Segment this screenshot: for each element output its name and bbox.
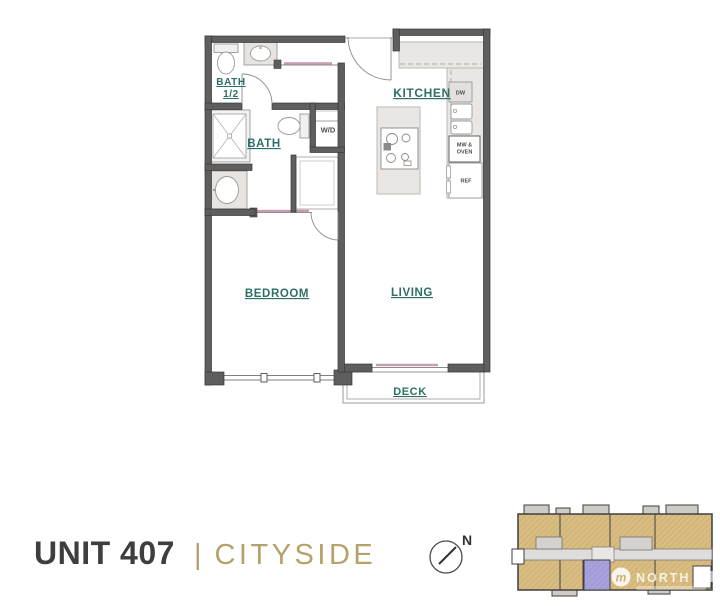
washer-dryer-unit: [314, 108, 341, 121]
title-bar: UNIT 407 | CITYSIDE: [34, 535, 376, 572]
kitchen-sink: [451, 104, 472, 134]
watermark-logo-letter: m: [616, 571, 627, 585]
microwave-oven-label-line2: OVEN: [457, 150, 473, 156]
room-label-washer-dryer: W/D: [321, 126, 336, 135]
site-plan-notch-left: [512, 549, 524, 564]
cooktop: [381, 128, 418, 169]
floor-plan-graphic: DW MW & OVEN REF: [0, 0, 720, 606]
entry-door-arc: [348, 37, 391, 80]
kitchen-island: [377, 107, 420, 194]
bedroom-window: [224, 374, 334, 383]
room-label-deck: DECK: [393, 386, 427, 398]
bedroom-door-arc: [311, 212, 338, 240]
site-plan-unit-highlight: [584, 560, 610, 590]
dishwasher-label: DW: [456, 91, 466, 97]
site-plan-core-right: [620, 537, 652, 550]
site-plan: m NORTH: [512, 505, 716, 596]
room-label-half-bath-line2: 1/2: [223, 89, 239, 100]
floor-plan: DW MW & OVEN REF: [205, 29, 490, 403]
watermark-text: NORTH: [636, 571, 690, 585]
microwave-oven-label-line1: MW &: [457, 143, 472, 149]
room-label-bedroom: BEDROOM: [245, 288, 309, 300]
bedroom-closet: [296, 157, 338, 209]
floor-plan-page: DW MW & OVEN REF: [0, 0, 720, 606]
room-label-living: LIVING: [391, 287, 433, 299]
bath-sink: [209, 171, 247, 209]
dishwasher-box: DW: [449, 82, 472, 102]
room-label-kitchen: KITCHEN: [393, 86, 451, 100]
half-bath-sink: [244, 42, 277, 65]
title-name: CITYSIDE: [214, 539, 376, 572]
compass-north-label: N: [462, 532, 472, 548]
half-bath-door-arc: [242, 74, 272, 104]
shower: [209, 110, 250, 162]
site-plan-corridor: [518, 549, 712, 560]
title-divider: |: [194, 539, 202, 572]
site-plan-core-left: [536, 537, 562, 549]
hall-sliding-door: [274, 60, 338, 69]
watermark-subtext: [636, 586, 706, 590]
bath-toilet: [278, 114, 309, 138]
watermark-text-cutoff: [706, 571, 716, 582]
half-bath-toilet: [214, 44, 238, 74]
refrigerator-box: REF: [447, 163, 483, 198]
microwave-oven-box: MW & OVEN: [449, 136, 480, 162]
title-unit: UNIT 407: [34, 535, 175, 572]
room-label-bath: BATH: [247, 138, 281, 150]
deck-sliding-door: [372, 364, 448, 368]
room-label-half-bath-line1: BATH: [216, 77, 245, 88]
refrigerator-label: REF: [461, 179, 473, 185]
north-compass: N: [430, 532, 472, 573]
